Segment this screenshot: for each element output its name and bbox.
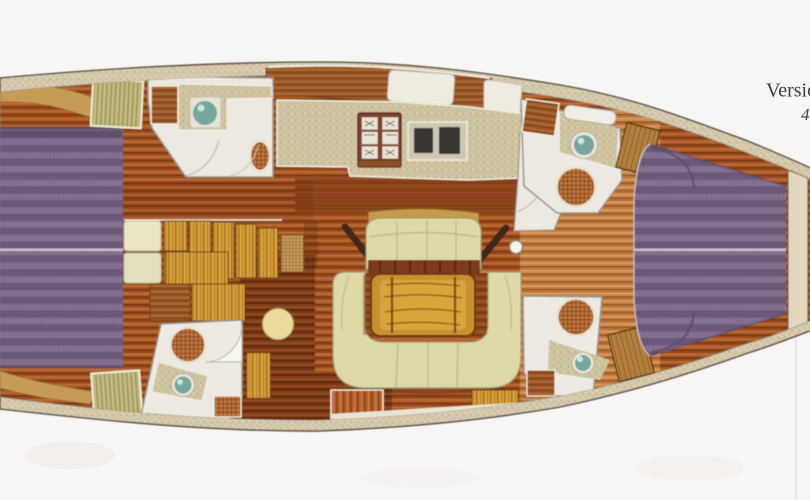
- svg-text:4: 4: [801, 105, 810, 124]
- svg-text:Version: Version: [766, 80, 810, 102]
